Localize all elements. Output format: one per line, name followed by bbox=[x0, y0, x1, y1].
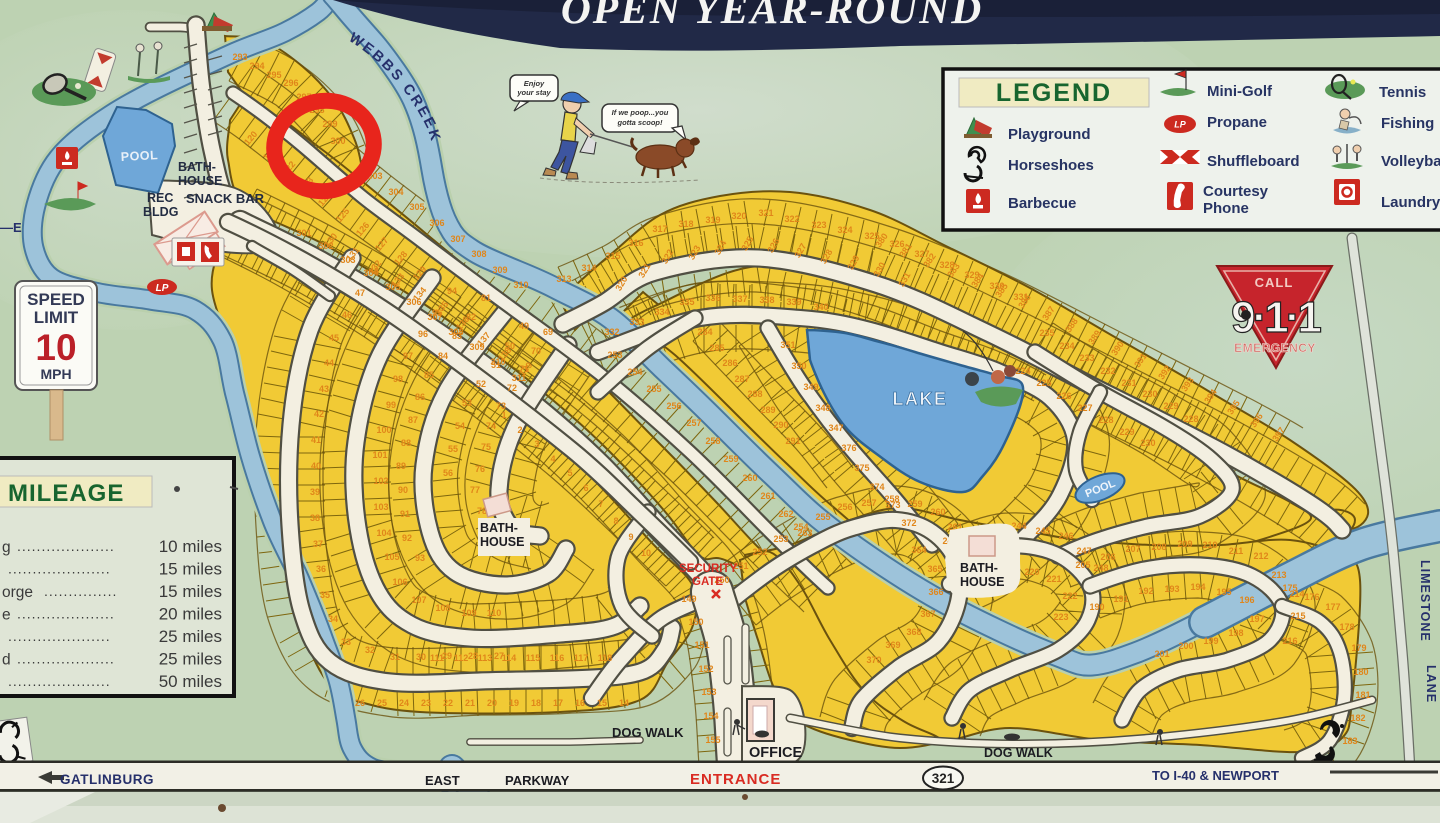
svg-text:Fishing: Fishing bbox=[1381, 115, 1434, 132]
svg-text:89: 89 bbox=[396, 461, 406, 471]
svg-text:210: 210 bbox=[1202, 540, 1217, 550]
svg-text:DOG WALK: DOG WALK bbox=[984, 746, 1053, 760]
svg-text:258: 258 bbox=[884, 494, 899, 504]
svg-text:183: 183 bbox=[1342, 736, 1357, 746]
svg-text:CALL: CALL bbox=[1255, 275, 1294, 290]
svg-text:369: 369 bbox=[885, 640, 900, 650]
svg-text:338: 338 bbox=[759, 295, 774, 305]
svg-text:110: 110 bbox=[487, 608, 502, 618]
svg-text:Horseshoes: Horseshoes bbox=[1008, 157, 1094, 174]
svg-text:308: 308 bbox=[471, 249, 486, 259]
svg-text:180: 180 bbox=[1353, 667, 1368, 677]
svg-text:32: 32 bbox=[365, 645, 375, 655]
svg-text:3: 3 bbox=[534, 439, 539, 449]
svg-text:179: 179 bbox=[1351, 643, 1366, 653]
svg-text:....................: .................... bbox=[17, 651, 115, 667]
svg-text:231: 231 bbox=[1121, 378, 1136, 388]
svg-text:90: 90 bbox=[398, 485, 408, 495]
svg-text:195: 195 bbox=[1216, 587, 1231, 597]
svg-text:206: 206 bbox=[1100, 552, 1115, 562]
svg-text:97: 97 bbox=[403, 351, 413, 361]
svg-text:5: 5 bbox=[567, 468, 572, 478]
svg-text:69: 69 bbox=[543, 327, 553, 337]
svg-text:74: 74 bbox=[486, 421, 496, 431]
svg-text:368: 368 bbox=[906, 627, 921, 637]
svg-text:248: 248 bbox=[1093, 563, 1108, 573]
svg-text:364: 364 bbox=[911, 545, 926, 555]
svg-text:287: 287 bbox=[734, 374, 749, 384]
svg-text:372: 372 bbox=[901, 518, 916, 528]
svg-text:351: 351 bbox=[780, 340, 795, 350]
svg-text:91: 91 bbox=[400, 509, 410, 519]
svg-text:Volleyball: Volleyball bbox=[1381, 153, 1440, 170]
svg-text:198: 198 bbox=[1228, 628, 1243, 638]
svg-text:320: 320 bbox=[731, 211, 746, 221]
svg-text:258: 258 bbox=[705, 436, 720, 446]
svg-text:319: 319 bbox=[705, 215, 720, 225]
svg-text:256: 256 bbox=[837, 502, 852, 512]
svg-text:LIMESTONE: LIMESTONE bbox=[1418, 560, 1432, 642]
svg-text:23: 23 bbox=[421, 698, 431, 708]
svg-text:254: 254 bbox=[793, 522, 808, 532]
svg-text:334: 334 bbox=[654, 307, 669, 317]
svg-text:If we poop...you: If we poop...you bbox=[612, 108, 669, 117]
svg-text:30: 30 bbox=[416, 652, 426, 662]
svg-text:348: 348 bbox=[815, 403, 830, 413]
svg-text:7: 7 bbox=[598, 499, 603, 509]
svg-text:224: 224 bbox=[1015, 366, 1030, 376]
svg-text:306: 306 bbox=[406, 297, 421, 307]
svg-text:332: 332 bbox=[604, 327, 619, 337]
svg-text:54: 54 bbox=[455, 421, 465, 431]
svg-text:257: 257 bbox=[861, 498, 876, 508]
svg-text:101: 101 bbox=[372, 450, 387, 460]
svg-text:209: 209 bbox=[1177, 539, 1192, 549]
svg-text:376: 376 bbox=[841, 443, 856, 453]
svg-text:102: 102 bbox=[373, 476, 388, 486]
svg-text:LP: LP bbox=[156, 283, 169, 294]
svg-text:299: 299 bbox=[322, 119, 337, 129]
svg-text:230: 230 bbox=[1140, 438, 1155, 448]
svg-text:99: 99 bbox=[386, 400, 396, 410]
svg-text:81: 81 bbox=[481, 293, 491, 303]
svg-text:322: 322 bbox=[784, 214, 799, 224]
svg-text:208: 208 bbox=[1151, 542, 1166, 552]
svg-text:335: 335 bbox=[679, 297, 694, 307]
svg-text:.....................: ..................... bbox=[8, 561, 111, 577]
svg-text:36: 36 bbox=[316, 564, 326, 574]
svg-text:88: 88 bbox=[401, 438, 411, 448]
svg-text:15 miles: 15 miles bbox=[159, 560, 222, 579]
svg-text:255: 255 bbox=[815, 512, 830, 522]
svg-text:201: 201 bbox=[1154, 649, 1169, 659]
svg-text:SECURITY: SECURITY bbox=[679, 563, 737, 575]
svg-text:226: 226 bbox=[1056, 391, 1071, 401]
svg-text:207: 207 bbox=[1125, 544, 1140, 554]
svg-text:Playground: Playground bbox=[1008, 126, 1091, 143]
svg-text:194: 194 bbox=[1190, 582, 1205, 592]
svg-text:96: 96 bbox=[418, 329, 428, 339]
svg-text:Propane: Propane bbox=[1207, 114, 1267, 131]
svg-text:197: 197 bbox=[1249, 614, 1264, 624]
svg-text:310: 310 bbox=[513, 280, 528, 290]
svg-text:196: 196 bbox=[1239, 595, 1254, 605]
svg-text:26: 26 bbox=[355, 698, 365, 708]
svg-text:109: 109 bbox=[461, 608, 476, 618]
svg-text:d: d bbox=[2, 652, 11, 669]
svg-text:227: 227 bbox=[1077, 403, 1092, 413]
svg-text:105: 105 bbox=[384, 552, 399, 562]
svg-text:your stay: your stay bbox=[516, 88, 551, 97]
svg-text:HOUSE: HOUSE bbox=[178, 174, 222, 188]
svg-text:294: 294 bbox=[249, 61, 264, 71]
svg-text:230: 230 bbox=[1142, 389, 1157, 399]
svg-text:213: 213 bbox=[1271, 570, 1286, 580]
svg-text:BLDG: BLDG bbox=[143, 205, 178, 219]
svg-text:BATH-: BATH- bbox=[480, 521, 518, 535]
svg-text:REC: REC bbox=[147, 191, 173, 205]
svg-text:199: 199 bbox=[1203, 636, 1218, 646]
svg-text:15 miles: 15 miles bbox=[159, 582, 222, 601]
svg-text:108: 108 bbox=[435, 603, 450, 613]
svg-text:309: 309 bbox=[492, 265, 507, 275]
svg-text:308: 308 bbox=[448, 327, 463, 337]
svg-text:BATH-: BATH- bbox=[178, 160, 216, 174]
svg-text:150: 150 bbox=[688, 617, 703, 627]
svg-text:247: 247 bbox=[1076, 546, 1091, 556]
svg-text:112: 112 bbox=[454, 653, 469, 663]
svg-text:25 miles: 25 miles bbox=[159, 650, 222, 669]
svg-text:20 miles: 20 miles bbox=[159, 605, 222, 624]
svg-text:151: 151 bbox=[694, 640, 709, 650]
svg-text:311: 311 bbox=[512, 373, 527, 383]
svg-text:321: 321 bbox=[758, 208, 773, 218]
svg-text:...............: ............... bbox=[44, 583, 117, 599]
svg-text:84: 84 bbox=[438, 351, 448, 361]
svg-text:339: 339 bbox=[786, 297, 801, 307]
svg-text:307: 307 bbox=[450, 234, 465, 244]
svg-text:347: 347 bbox=[828, 423, 843, 433]
svg-text:19: 19 bbox=[509, 698, 519, 708]
svg-text:253: 253 bbox=[773, 534, 788, 544]
svg-text:OPEN YEAR-ROUND: OPEN YEAR-ROUND bbox=[561, 0, 983, 32]
svg-text:323: 323 bbox=[811, 220, 826, 230]
svg-text:211: 211 bbox=[1229, 546, 1244, 556]
svg-text:25 miles: 25 miles bbox=[159, 627, 222, 646]
svg-text:316: 316 bbox=[628, 238, 643, 248]
svg-text:31: 31 bbox=[390, 652, 400, 662]
svg-text:Phone: Phone bbox=[1203, 200, 1249, 217]
svg-text:118: 118 bbox=[598, 653, 613, 663]
svg-text:Tennis: Tennis bbox=[1379, 84, 1426, 101]
svg-text:225: 225 bbox=[1036, 378, 1051, 388]
svg-text:87: 87 bbox=[408, 415, 418, 425]
svg-text:307: 307 bbox=[427, 312, 442, 322]
svg-text:367: 367 bbox=[920, 609, 935, 619]
svg-text:261: 261 bbox=[760, 491, 775, 501]
svg-text:35: 35 bbox=[320, 590, 330, 600]
svg-text:56: 56 bbox=[443, 468, 453, 478]
svg-text:245: 245 bbox=[1035, 526, 1050, 536]
svg-text:HOUSE: HOUSE bbox=[960, 575, 1004, 589]
svg-text:10: 10 bbox=[35, 327, 76, 368]
svg-text:75: 75 bbox=[481, 442, 491, 452]
svg-text:304: 304 bbox=[363, 268, 378, 278]
svg-text:22: 22 bbox=[443, 698, 453, 708]
svg-text:229: 229 bbox=[1163, 401, 1178, 411]
svg-text:115: 115 bbox=[526, 653, 541, 663]
svg-text:43: 43 bbox=[319, 384, 329, 394]
svg-text:190: 190 bbox=[1089, 602, 1104, 612]
svg-text:BATH-: BATH- bbox=[960, 561, 998, 575]
svg-text:4: 4 bbox=[550, 454, 555, 464]
svg-text:100: 100 bbox=[376, 425, 391, 435]
svg-text:349: 349 bbox=[803, 382, 818, 392]
svg-text:152: 152 bbox=[698, 664, 713, 674]
svg-text:175: 175 bbox=[1282, 583, 1297, 593]
svg-text:301: 301 bbox=[296, 228, 311, 238]
svg-text:324: 324 bbox=[837, 225, 852, 235]
svg-text:333: 333 bbox=[629, 317, 644, 327]
svg-text:256: 256 bbox=[666, 401, 681, 411]
svg-text:295: 295 bbox=[266, 70, 281, 80]
svg-text:SPEED: SPEED bbox=[27, 290, 85, 309]
svg-text:300: 300 bbox=[330, 136, 345, 146]
svg-text:296: 296 bbox=[283, 78, 298, 88]
svg-text:Courtesy: Courtesy bbox=[1203, 183, 1269, 200]
svg-text:ENTRANCE: ENTRANCE bbox=[690, 771, 781, 788]
svg-text:TO I-40 & NEWPORT: TO I-40 & NEWPORT bbox=[1152, 768, 1279, 783]
svg-text:223: 223 bbox=[1053, 612, 1068, 622]
svg-text:Barbecue: Barbecue bbox=[1008, 195, 1076, 212]
svg-text:291: 291 bbox=[785, 436, 800, 446]
svg-text:116: 116 bbox=[550, 653, 565, 663]
svg-text:orge: orge bbox=[2, 584, 33, 601]
svg-text:DOG WALK: DOG WALK bbox=[612, 725, 684, 740]
svg-text:262: 262 bbox=[778, 509, 793, 519]
svg-text:233: 233 bbox=[1079, 353, 1094, 363]
svg-text:45: 45 bbox=[329, 333, 339, 343]
svg-text:GATE: GATE bbox=[692, 576, 723, 588]
svg-text:OFFICE: OFFICE bbox=[749, 745, 802, 761]
svg-text:LEGEND: LEGEND bbox=[996, 79, 1112, 107]
svg-text:16: 16 bbox=[575, 698, 585, 708]
svg-text:EMERGENCY: EMERGENCY bbox=[1234, 341, 1316, 355]
svg-text:39: 39 bbox=[310, 487, 320, 497]
svg-text:221: 221 bbox=[1046, 574, 1061, 584]
svg-text:38: 38 bbox=[310, 513, 320, 523]
svg-text:293: 293 bbox=[232, 52, 247, 62]
svg-text:24: 24 bbox=[399, 698, 409, 708]
svg-text:10 miles: 10 miles bbox=[159, 537, 222, 556]
svg-text:302: 302 bbox=[318, 241, 333, 251]
svg-text:290: 290 bbox=[773, 420, 788, 430]
svg-text:315: 315 bbox=[605, 251, 620, 261]
svg-text:92: 92 bbox=[402, 533, 412, 543]
svg-text:103: 103 bbox=[373, 502, 388, 512]
svg-text:222: 222 bbox=[1062, 591, 1077, 601]
svg-text:337: 337 bbox=[732, 294, 747, 304]
svg-text:254: 254 bbox=[627, 367, 642, 377]
svg-text:306: 306 bbox=[429, 218, 444, 228]
svg-text:176: 176 bbox=[1304, 592, 1319, 602]
svg-text:gotta scoop!: gotta scoop! bbox=[617, 118, 663, 127]
svg-text:2: 2 bbox=[517, 425, 522, 435]
svg-text:374: 374 bbox=[869, 482, 884, 492]
svg-text:216: 216 bbox=[1282, 636, 1297, 646]
svg-text:Mini-Golf: Mini-Golf bbox=[1207, 83, 1273, 100]
svg-text:SNACK BAR: SNACK BAR bbox=[186, 191, 265, 206]
svg-text:305: 305 bbox=[409, 202, 424, 212]
svg-text:18: 18 bbox=[531, 698, 541, 708]
svg-text:285: 285 bbox=[709, 343, 724, 353]
svg-text:229: 229 bbox=[1119, 427, 1134, 437]
svg-text:86: 86 bbox=[415, 392, 425, 402]
svg-text:192: 192 bbox=[1138, 586, 1153, 596]
svg-text:34: 34 bbox=[328, 614, 338, 624]
svg-text:259: 259 bbox=[723, 454, 738, 464]
svg-text:252: 252 bbox=[752, 547, 767, 557]
svg-text:37: 37 bbox=[313, 539, 323, 549]
svg-text:POOL: POOL bbox=[120, 148, 158, 164]
svg-text:MPH: MPH bbox=[40, 366, 71, 382]
svg-text:370: 370 bbox=[866, 655, 881, 665]
svg-text:9: 9 bbox=[628, 532, 633, 542]
svg-text:.....................: ..................... bbox=[8, 673, 111, 689]
svg-text:94: 94 bbox=[447, 286, 457, 296]
svg-text:193: 193 bbox=[1164, 584, 1179, 594]
svg-text:257: 257 bbox=[686, 418, 701, 428]
svg-text:365: 365 bbox=[927, 564, 942, 574]
svg-text:178: 178 bbox=[1339, 622, 1354, 632]
svg-text:336: 336 bbox=[705, 293, 720, 303]
svg-text:246: 246 bbox=[1058, 531, 1073, 541]
svg-text:260: 260 bbox=[930, 507, 945, 517]
svg-text:304: 304 bbox=[388, 187, 403, 197]
svg-text:305: 305 bbox=[385, 282, 400, 292]
svg-text:70: 70 bbox=[531, 346, 541, 356]
svg-text:MILEAGE: MILEAGE bbox=[8, 480, 124, 507]
svg-text:40: 40 bbox=[311, 461, 321, 471]
svg-text:10: 10 bbox=[641, 548, 651, 558]
svg-text:303: 303 bbox=[340, 255, 355, 265]
svg-text:113: 113 bbox=[478, 653, 493, 663]
svg-text:228: 228 bbox=[1183, 414, 1198, 424]
svg-text:117: 117 bbox=[574, 653, 589, 663]
svg-text:85: 85 bbox=[424, 370, 434, 380]
svg-text:33: 33 bbox=[341, 637, 351, 647]
svg-text:44: 44 bbox=[324, 358, 334, 368]
svg-text:153: 153 bbox=[701, 687, 716, 697]
svg-text:191: 191 bbox=[1113, 594, 1128, 604]
svg-text:....................: .................... bbox=[17, 538, 115, 554]
svg-text:PARKWAY: PARKWAY bbox=[505, 773, 570, 788]
svg-text:259: 259 bbox=[907, 499, 922, 509]
svg-text:42: 42 bbox=[314, 409, 324, 419]
svg-text:314: 314 bbox=[581, 263, 596, 273]
svg-text:LP: LP bbox=[1174, 120, 1186, 130]
svg-text:g: g bbox=[2, 539, 11, 556]
svg-text:310: 310 bbox=[490, 357, 505, 367]
svg-text:235: 235 bbox=[1039, 328, 1054, 338]
svg-text:253: 253 bbox=[607, 350, 622, 360]
svg-text:28: 28 bbox=[468, 651, 478, 661]
svg-text:286: 286 bbox=[722, 358, 737, 368]
svg-text:260: 260 bbox=[742, 473, 757, 483]
svg-text:GATLINBURG: GATLINBURG bbox=[60, 772, 154, 787]
svg-text:17: 17 bbox=[553, 698, 563, 708]
svg-text:234: 234 bbox=[1059, 341, 1074, 351]
svg-text:HOUSE: HOUSE bbox=[480, 535, 524, 549]
svg-text:50 miles: 50 miles bbox=[159, 672, 222, 691]
svg-text:15: 15 bbox=[597, 698, 607, 708]
svg-text:107: 107 bbox=[411, 595, 426, 605]
svg-text:318: 318 bbox=[678, 219, 693, 229]
svg-text:104: 104 bbox=[376, 528, 391, 538]
svg-text:289: 289 bbox=[760, 405, 775, 415]
svg-text:21: 21 bbox=[465, 698, 475, 708]
svg-text:—E: —E bbox=[0, 220, 22, 235]
svg-text:52: 52 bbox=[476, 379, 486, 389]
svg-text:76: 76 bbox=[475, 464, 485, 474]
svg-text:93: 93 bbox=[415, 553, 425, 563]
svg-text:Shuffleboard: Shuffleboard bbox=[1207, 153, 1300, 170]
svg-text:154: 154 bbox=[703, 711, 718, 721]
svg-text:309: 309 bbox=[469, 342, 484, 352]
svg-text:205: 205 bbox=[1075, 560, 1090, 570]
svg-text:317: 317 bbox=[652, 224, 667, 234]
svg-text:321: 321 bbox=[932, 771, 955, 786]
svg-text:55: 55 bbox=[448, 444, 458, 454]
svg-text:1: 1 bbox=[501, 410, 506, 420]
svg-text:255: 255 bbox=[646, 384, 661, 394]
svg-text:177: 177 bbox=[1325, 602, 1340, 612]
svg-text:340: 340 bbox=[813, 302, 828, 312]
svg-text:106: 106 bbox=[392, 577, 407, 587]
svg-text:98: 98 bbox=[393, 374, 403, 384]
svg-text:155: 155 bbox=[705, 735, 720, 745]
svg-text:20: 20 bbox=[487, 698, 497, 708]
svg-text:220: 220 bbox=[1024, 567, 1039, 577]
svg-text:228: 228 bbox=[1098, 415, 1113, 425]
svg-text:6: 6 bbox=[583, 483, 588, 493]
svg-text:350: 350 bbox=[791, 361, 806, 371]
svg-text:Laundry: Laundry bbox=[1381, 194, 1440, 211]
svg-text:LANE: LANE bbox=[1424, 665, 1438, 703]
svg-text:25: 25 bbox=[377, 698, 387, 708]
svg-text:149: 149 bbox=[681, 594, 696, 604]
svg-text:212: 212 bbox=[1253, 551, 1268, 561]
svg-text:47: 47 bbox=[355, 288, 365, 298]
svg-text:366: 366 bbox=[928, 587, 943, 597]
svg-text:232: 232 bbox=[1100, 366, 1115, 376]
svg-text:200: 200 bbox=[1178, 641, 1193, 651]
svg-text:288: 288 bbox=[747, 389, 762, 399]
svg-text:....................: .................... bbox=[17, 606, 115, 622]
svg-text:EAST: EAST bbox=[425, 773, 460, 788]
svg-text:111: 111 bbox=[430, 653, 444, 663]
svg-text:284: 284 bbox=[697, 327, 712, 337]
svg-text:8: 8 bbox=[613, 516, 618, 526]
svg-text:72: 72 bbox=[507, 383, 517, 393]
svg-text:14: 14 bbox=[619, 698, 629, 708]
svg-text:49: 49 bbox=[519, 321, 529, 331]
svg-text:53: 53 bbox=[462, 398, 472, 408]
svg-text:41: 41 bbox=[311, 435, 321, 445]
svg-text:LAKE: LAKE bbox=[893, 389, 948, 409]
svg-text:.....................: ..................... bbox=[8, 628, 111, 644]
svg-text:313: 313 bbox=[556, 274, 571, 284]
